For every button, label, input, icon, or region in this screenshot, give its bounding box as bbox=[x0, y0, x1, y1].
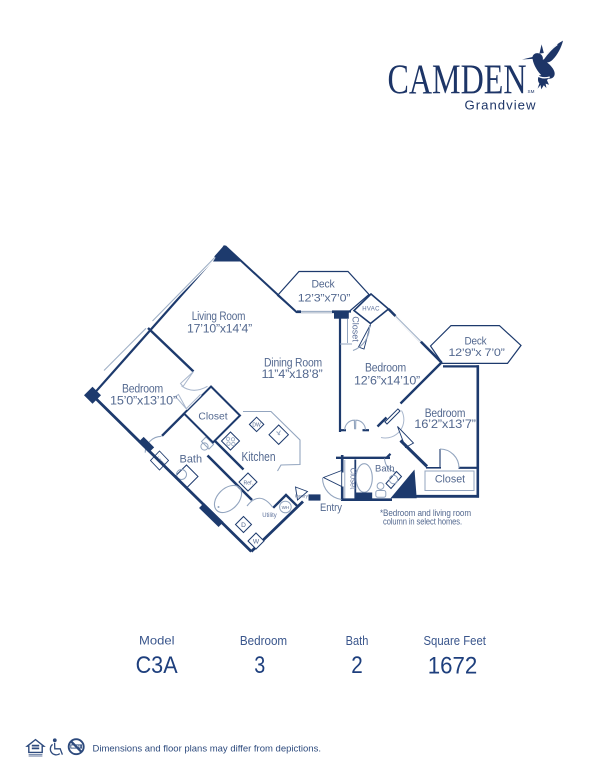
svg-text:Closet: Closet bbox=[435, 473, 465, 485]
svg-text:Square Feet: Square Feet bbox=[424, 634, 487, 648]
svg-text:Bath: Bath bbox=[180, 454, 203, 466]
svg-text:Utility: Utility bbox=[262, 512, 277, 519]
svg-text:Dimensions and floor plans may: Dimensions and floor plans may differ fr… bbox=[93, 743, 321, 754]
svg-text:Kitchen: Kitchen bbox=[242, 450, 276, 464]
svg-text:Closet: Closet bbox=[351, 316, 361, 342]
svg-text:17’10”x14’4”: 17’10”x14’4” bbox=[187, 322, 252, 336]
svg-text:Deck: Deck bbox=[465, 336, 488, 348]
svg-text:WH: WH bbox=[282, 505, 290, 510]
svg-text:Bath: Bath bbox=[346, 634, 369, 648]
svg-text:column in select homes.: column in select homes. bbox=[383, 516, 462, 526]
svg-text:1672: 1672 bbox=[428, 653, 478, 680]
svg-text:11”4”x18’8”: 11”4”x18’8” bbox=[262, 367, 323, 381]
svg-text:15’0”x13’10”: 15’0”x13’10” bbox=[110, 394, 177, 408]
svg-text:Ref.: Ref. bbox=[244, 480, 254, 486]
svg-text:Closet: Closet bbox=[198, 410, 227, 422]
svg-text:Deck: Deck bbox=[312, 279, 336, 291]
svg-text:Grandview: Grandview bbox=[465, 97, 537, 112]
svg-text:HVAC: HVAC bbox=[362, 306, 380, 312]
svg-text:Entry: Entry bbox=[320, 502, 342, 514]
svg-text:2: 2 bbox=[351, 652, 363, 679]
svg-text:12’3”x7’0”: 12’3”x7’0” bbox=[298, 293, 351, 305]
svg-text:12’6”x14’10”: 12’6”x14’10” bbox=[354, 374, 420, 388]
svg-text:3: 3 bbox=[254, 652, 265, 679]
svg-text:DW: DW bbox=[252, 422, 261, 428]
svg-text:16’2”x13’7”: 16’2”x13’7” bbox=[414, 418, 476, 431]
svg-text:SM: SM bbox=[528, 89, 535, 94]
svg-text:C3A: C3A bbox=[136, 652, 178, 679]
svg-text:Pantry: Pantry bbox=[295, 494, 308, 499]
svg-text:Model: Model bbox=[139, 634, 175, 648]
svg-text:12’9”x 7’0”: 12’9”x 7’0” bbox=[448, 347, 505, 359]
svg-text:Bedroom: Bedroom bbox=[365, 361, 406, 375]
svg-text:Bath: Bath bbox=[375, 464, 395, 475]
svg-text:W: W bbox=[253, 539, 260, 546]
svg-text:Bedroom: Bedroom bbox=[240, 634, 287, 648]
svg-text:D: D bbox=[241, 522, 246, 529]
